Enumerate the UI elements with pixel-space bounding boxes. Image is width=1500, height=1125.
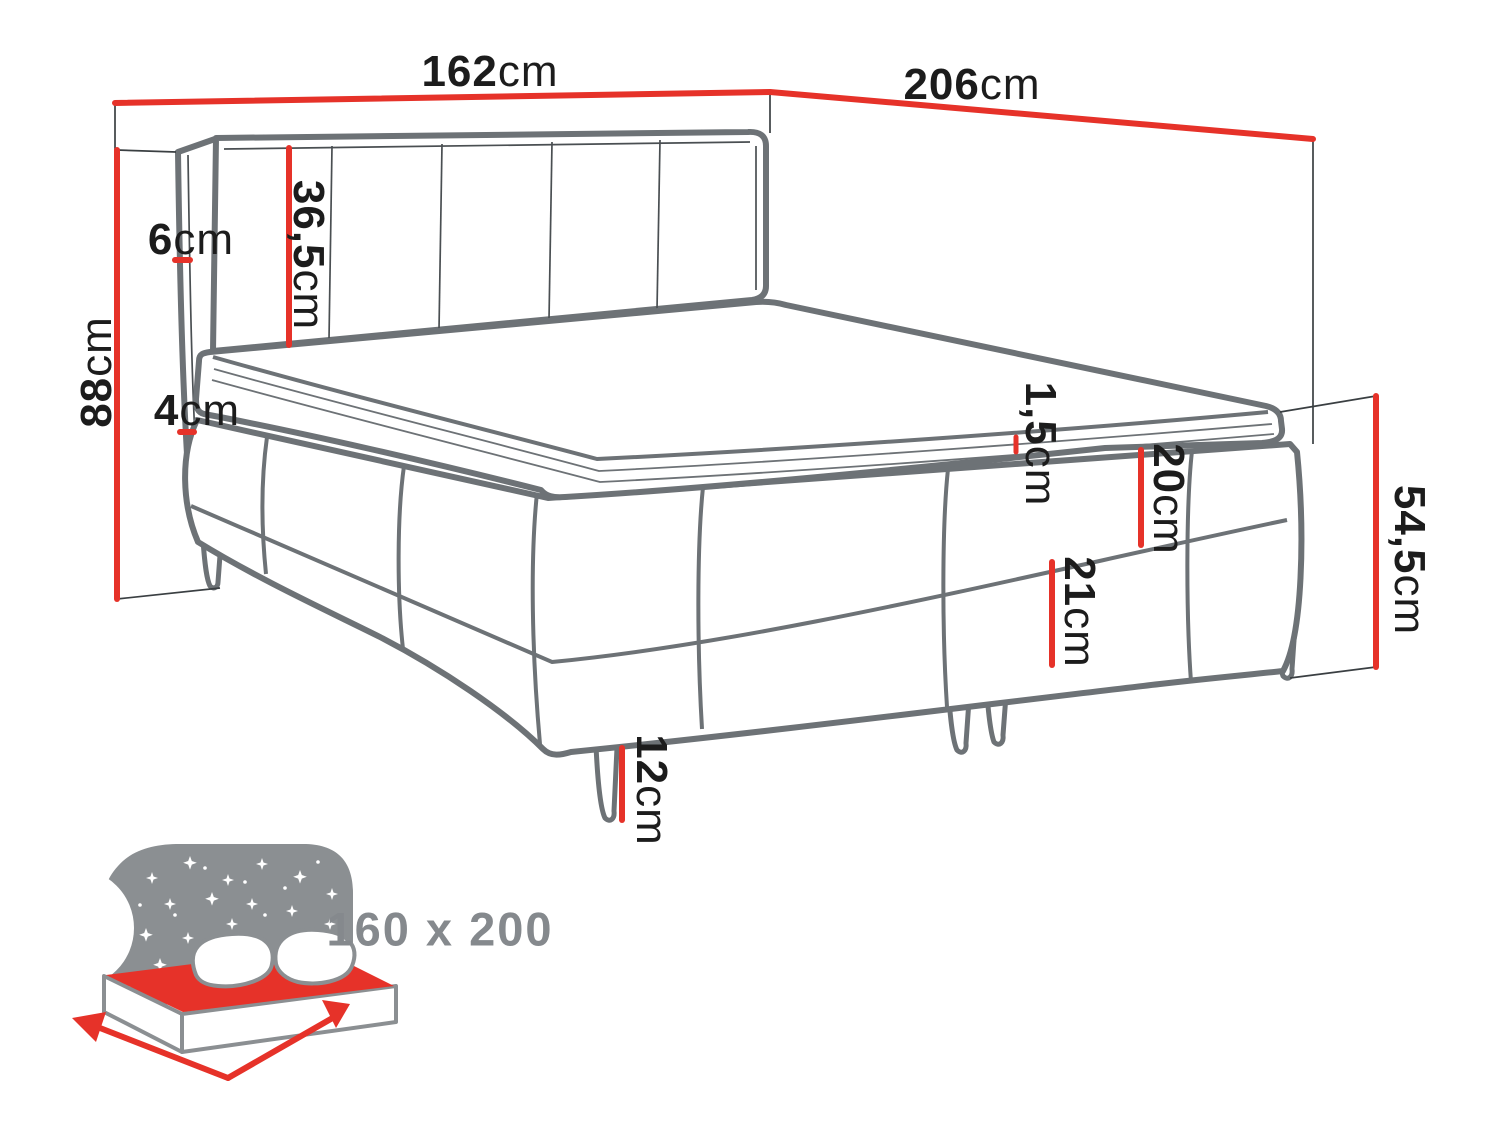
icon-pillow [193, 934, 273, 987]
dim-side-height-value: 54,5 [1385, 485, 1434, 575]
dim-headboard-panel-value: 36,5 [284, 180, 333, 270]
arrowhead [72, 1012, 106, 1042]
dim-width-label: 162cm [421, 50, 558, 94]
dim-frame-top-label: 6cm [148, 218, 234, 262]
dim-line-length [770, 92, 1313, 139]
leg-front-corner [596, 746, 617, 820]
dim-total-height-label: 88cm [75, 316, 119, 428]
dim-width-value: 162 [421, 47, 497, 96]
floor-line [117, 588, 220, 599]
moon-crescent-icon [14, 868, 134, 988]
size-icon [14, 844, 396, 1078]
dim-total-height-value: 88 [72, 377, 121, 428]
size-badge: 160 x 200 [326, 902, 553, 957]
dim-length-value: 206 [903, 60, 979, 109]
dim-frame-gap-value: 4 [154, 386, 179, 435]
diagram-canvas: 162cm 206cm 88cm 36,5cm 6cm 4cm 1,5cm 20… [0, 0, 1500, 1125]
dim-length-label: 206cm [903, 63, 1040, 107]
dim-topper-value: 1,5 [1016, 382, 1065, 446]
dim-side-height-label: 54,5cm [1387, 485, 1431, 635]
dim-base-label: 21cm [1057, 556, 1101, 668]
dim-mattress-label: 20cm [1146, 443, 1190, 555]
bed-line-drawing [0, 0, 1500, 1125]
dim-leg-value: 12 [627, 734, 676, 785]
dim-topper-label: 1,5cm [1018, 382, 1062, 507]
dim-frame-gap-label: 4cm [154, 389, 240, 433]
dim-headboard-panel-label: 36,5cm [286, 180, 330, 330]
dim-base-value: 21 [1055, 556, 1104, 607]
dim-mattress-value: 20 [1144, 443, 1193, 494]
dim-frame-top-value: 6 [148, 215, 173, 264]
dim-leg-label: 12cm [629, 734, 673, 846]
